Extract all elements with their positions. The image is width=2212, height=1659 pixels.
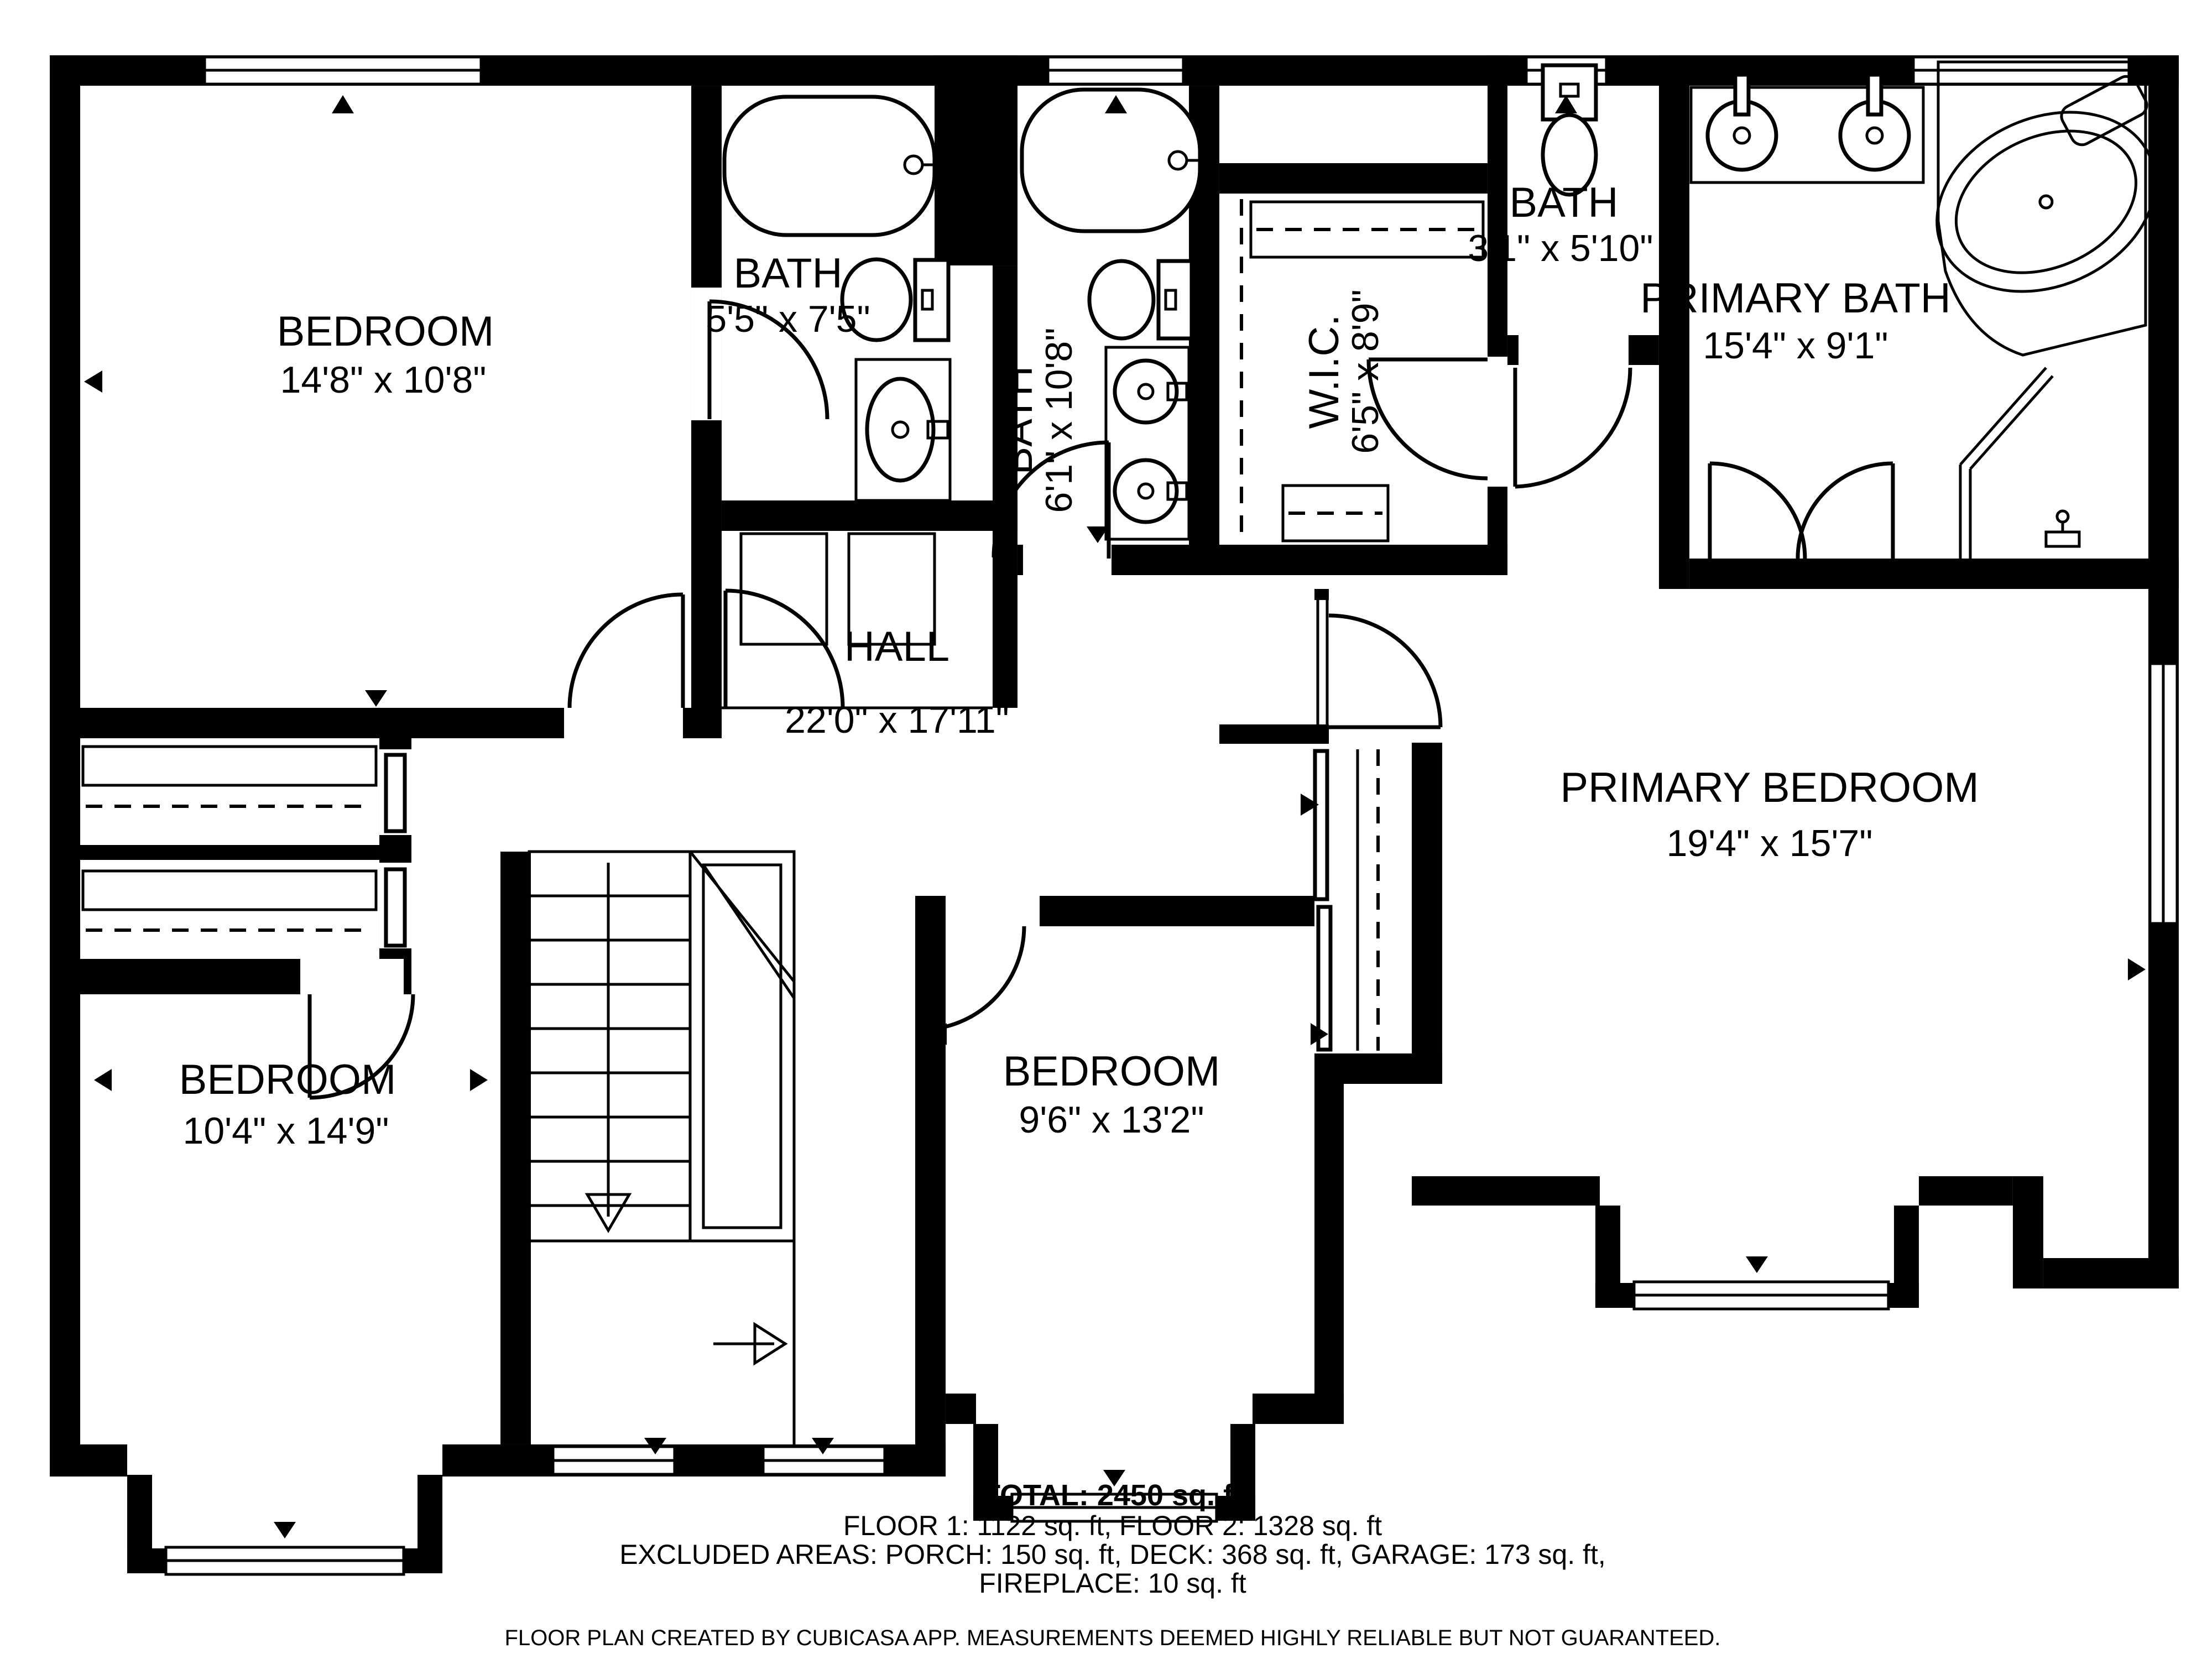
room-label-primary-bath: PRIMARY BATH <box>1640 275 1951 322</box>
footer: TOTAL: 2450 sq. ft FLOOR 1: 1122 sq. ft,… <box>505 1479 1721 1650</box>
sliding-closet-doors-icon <box>1315 749 1378 1051</box>
room-label-hall: HALL <box>844 623 950 670</box>
footer-excluded-areas: EXCLUDED AREAS: PORCH: 150 sq. ft, DECK:… <box>619 1539 1605 1570</box>
room-label-bath-1: BATH <box>734 250 843 297</box>
toilet-icon <box>1089 261 1192 338</box>
doors <box>310 301 1893 1098</box>
room-label-wic: W.I.C. <box>1301 315 1348 429</box>
door-icon <box>1318 600 1441 727</box>
room-dims-bedroom-2: 10'4" x 14'9" <box>183 1110 389 1152</box>
toilet-icon <box>1543 65 1596 195</box>
double-sink-vanity-icon <box>1691 75 1923 182</box>
sink-icon <box>856 359 950 500</box>
door-icon <box>570 594 683 708</box>
double-sink-vanity-icon <box>1106 347 1189 539</box>
room-dims-hall: 22'0" x 17'11" <box>785 699 1009 741</box>
room-labels: BEDROOM 14'8" x 10'8" BATH 5'5" x 7'5" B… <box>179 179 1979 1152</box>
footer-excluded-areas-2: FIREPLACE: 10 sq. ft <box>979 1568 1246 1599</box>
door-icon <box>1515 368 1630 487</box>
room-dims-primary-bedroom: 19'4" x 15'7" <box>1667 822 1873 864</box>
room-label-bedroom-2: BEDROOM <box>179 1056 397 1103</box>
room-dims-bedroom-1: 14'8" x 10'8" <box>280 359 487 401</box>
room-dims-bath-3: 3'1" x 5'10" <box>1468 227 1653 269</box>
footer-disclaimer: FLOOR PLAN CREATED BY CUBICASA APP. MEAS… <box>505 1626 1721 1650</box>
room-label-primary-bedroom: PRIMARY BEDROOM <box>1560 764 1979 811</box>
footer-total: TOTAL: 2450 sq. ft <box>982 1479 1243 1512</box>
footer-floors: FLOOR 1: 1122 sq. ft, FLOOR 2: 1328 sq. … <box>843 1510 1382 1541</box>
window-icon <box>1048 57 1183 84</box>
double-door-icon <box>1710 463 1893 559</box>
room-dims-bath-1: 5'5" x 7'5" <box>706 298 870 340</box>
room-dims-primary-bath: 15'4" x 9'1" <box>1703 325 1888 367</box>
room-dims-bedroom-3: 9'6" x 13'2" <box>1019 1099 1204 1141</box>
floor-plan-page: BEDROOM 14'8" x 10'8" BATH 5'5" x 7'5" B… <box>0 0 2212 1659</box>
room-label-bath-2: BATH <box>994 366 1041 475</box>
floor-plan-canvas: BEDROOM 14'8" x 10'8" BATH 5'5" x 7'5" B… <box>0 0 2212 1659</box>
room-dims-bath-2: 6'1" x 10'8" <box>1038 327 1080 513</box>
bathtub-icon <box>724 97 935 235</box>
shower-icon <box>1960 368 2079 559</box>
door-icon <box>1369 359 1488 478</box>
room-dims-wic: 6'5" x 8'9" <box>1344 289 1386 453</box>
window-icon <box>205 57 481 84</box>
window-icon <box>2150 664 2177 924</box>
stairs-icon <box>529 852 794 1444</box>
room-label-bedroom-1: BEDROOM <box>277 308 494 355</box>
room-label-bath-3: BATH <box>1509 179 1618 226</box>
room-label-bedroom-3: BEDROOM <box>1003 1048 1220 1095</box>
window-icon <box>166 1547 404 1574</box>
window-icon <box>1634 1282 1888 1309</box>
